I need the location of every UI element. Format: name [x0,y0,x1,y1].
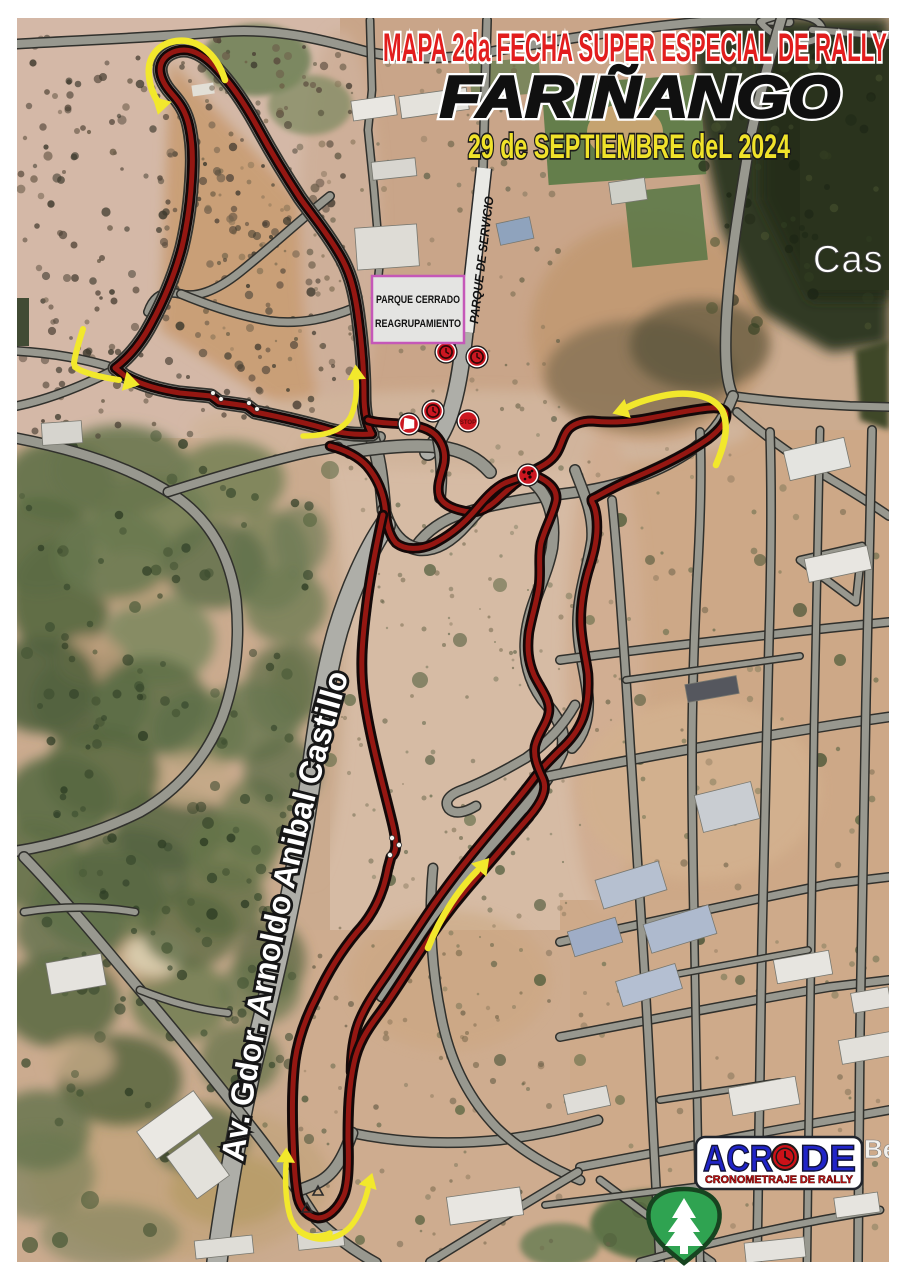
svg-text:PARQUE CERRADO: PARQUE CERRADO [376,294,460,306]
svg-text:STOP: STOP [460,420,476,426]
svg-text:MAPA 2da FECHA SUPER ESPECIAL: MAPA 2da FECHA SUPER ESPECIAL DE RALLY [383,26,887,70]
svg-text:ACR: ACR [703,1138,773,1179]
svg-text:Be: Be [864,1134,897,1164]
svg-text:FARIÑANGO: FARIÑANGO [440,65,840,130]
svg-text:DE: DE [800,1138,856,1179]
svg-text:Cas: Cas [813,239,884,281]
svg-text:29 de SEPTIEMBRE deL 2024: 29 de SEPTIEMBRE deL 2024 [468,128,790,166]
svg-text:REAGRUPAMIENTO: REAGRUPAMIENTO [375,318,461,330]
svg-text:CRONOMETRAJE DE RALLY: CRONOMETRAJE DE RALLY [705,1174,854,1186]
